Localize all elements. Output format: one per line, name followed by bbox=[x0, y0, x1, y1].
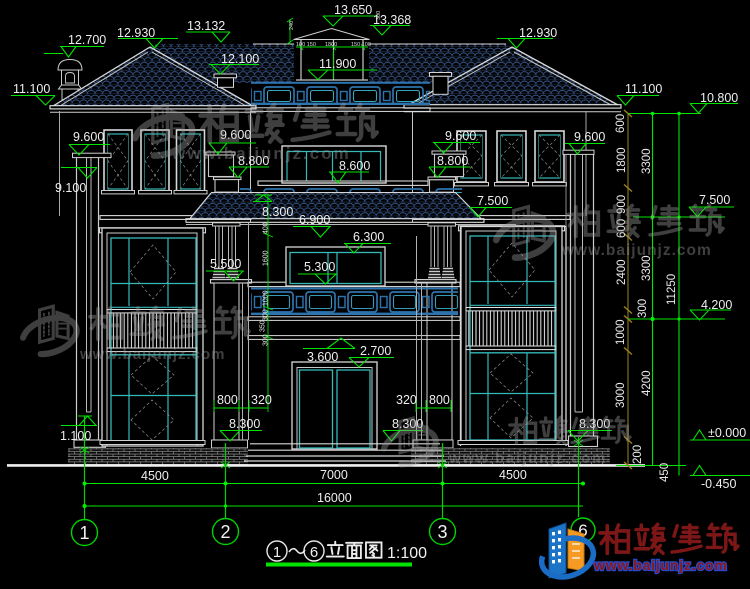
svg-text:320: 320 bbox=[251, 393, 272, 407]
svg-text:300: 300 bbox=[263, 309, 270, 321]
svg-text:12.930: 12.930 bbox=[519, 26, 557, 40]
svg-text:6: 6 bbox=[310, 544, 318, 561]
svg-text:3: 3 bbox=[437, 522, 447, 542]
svg-text:4500: 4500 bbox=[499, 468, 527, 482]
svg-text:9.100: 9.100 bbox=[55, 181, 86, 195]
svg-text:6.900: 6.900 bbox=[299, 213, 330, 227]
svg-text:300: 300 bbox=[376, 11, 382, 20]
svg-text:240: 240 bbox=[289, 21, 295, 30]
svg-text:-0.450: -0.450 bbox=[701, 477, 736, 491]
svg-text:350: 350 bbox=[260, 320, 267, 332]
svg-text:400: 400 bbox=[263, 222, 270, 234]
svg-text:8.300: 8.300 bbox=[262, 205, 293, 219]
svg-text:www.baijunjz.com: www.baijunjz.com bbox=[561, 242, 712, 259]
svg-text:7.500: 7.500 bbox=[477, 194, 508, 208]
svg-text:11250: 11250 bbox=[666, 274, 678, 305]
svg-text:1800: 1800 bbox=[325, 42, 337, 48]
svg-text:www.baijunjz.com: www.baijunjz.com bbox=[593, 557, 728, 573]
svg-text:800: 800 bbox=[429, 393, 450, 407]
svg-text:200: 200 bbox=[632, 445, 644, 464]
svg-text:1800: 1800 bbox=[616, 147, 628, 173]
svg-text:4200: 4200 bbox=[641, 370, 653, 396]
svg-text:www.baijunjz.com: www.baijunjz.com bbox=[171, 144, 351, 163]
svg-text:4500: 4500 bbox=[141, 469, 169, 483]
svg-text:11.900: 11.900 bbox=[319, 57, 356, 71]
svg-text:3.600: 3.600 bbox=[307, 350, 338, 364]
svg-text:www.baijunjz.com: www.baijunjz.com bbox=[79, 346, 225, 363]
svg-text:800: 800 bbox=[217, 393, 238, 407]
svg-text:600: 600 bbox=[615, 114, 627, 133]
svg-text:300: 300 bbox=[263, 334, 270, 346]
svg-text:11.100: 11.100 bbox=[625, 82, 662, 96]
svg-text:www.baijunjz.com: www.baijunjz.com bbox=[448, 450, 607, 467]
svg-text:8.800: 8.800 bbox=[437, 154, 468, 168]
svg-text:13.650: 13.650 bbox=[334, 3, 372, 17]
svg-text:3300: 3300 bbox=[641, 148, 653, 174]
svg-text:8.300: 8.300 bbox=[229, 417, 260, 431]
svg-text:1600: 1600 bbox=[263, 250, 270, 266]
svg-text:150 100: 150 100 bbox=[351, 42, 371, 48]
svg-text:11.100: 11.100 bbox=[13, 82, 50, 96]
svg-text:5.500: 5.500 bbox=[210, 257, 241, 271]
svg-text:1: 1 bbox=[273, 544, 281, 561]
svg-text:7000: 7000 bbox=[320, 468, 348, 482]
svg-text:3300: 3300 bbox=[641, 255, 653, 281]
svg-text:5.300: 5.300 bbox=[304, 260, 335, 274]
svg-text:2.700: 2.700 bbox=[360, 344, 391, 358]
svg-text:9.600: 9.600 bbox=[574, 130, 605, 144]
svg-text:100 150: 100 150 bbox=[296, 42, 316, 48]
svg-text:9.600: 9.600 bbox=[445, 129, 476, 143]
svg-text:16000: 16000 bbox=[317, 491, 352, 505]
svg-text:9.600: 9.600 bbox=[73, 130, 104, 144]
svg-text:320: 320 bbox=[396, 393, 417, 407]
svg-text:450: 450 bbox=[659, 463, 671, 482]
svg-text:1: 1 bbox=[79, 523, 89, 543]
svg-text:1000: 1000 bbox=[615, 319, 627, 345]
svg-text:300: 300 bbox=[637, 299, 649, 318]
svg-text:3000: 3000 bbox=[615, 382, 627, 408]
svg-text:10.800: 10.800 bbox=[700, 91, 738, 105]
svg-text:6.300: 6.300 bbox=[353, 230, 384, 244]
svg-text:1:100: 1:100 bbox=[387, 545, 427, 562]
svg-text:12.100: 12.100 bbox=[221, 52, 259, 66]
svg-text:12.930: 12.930 bbox=[117, 26, 155, 40]
svg-text:±0.000: ±0.000 bbox=[708, 426, 746, 440]
svg-text:13.132: 13.132 bbox=[187, 19, 225, 33]
svg-text:1000: 1000 bbox=[263, 290, 270, 306]
svg-text:4.200: 4.200 bbox=[701, 298, 732, 312]
svg-text:7.500: 7.500 bbox=[699, 193, 730, 207]
svg-text:12.700: 12.700 bbox=[68, 33, 106, 47]
svg-text:2: 2 bbox=[220, 522, 230, 542]
svg-text:2400: 2400 bbox=[616, 259, 628, 285]
svg-text:1.100: 1.100 bbox=[60, 429, 91, 443]
